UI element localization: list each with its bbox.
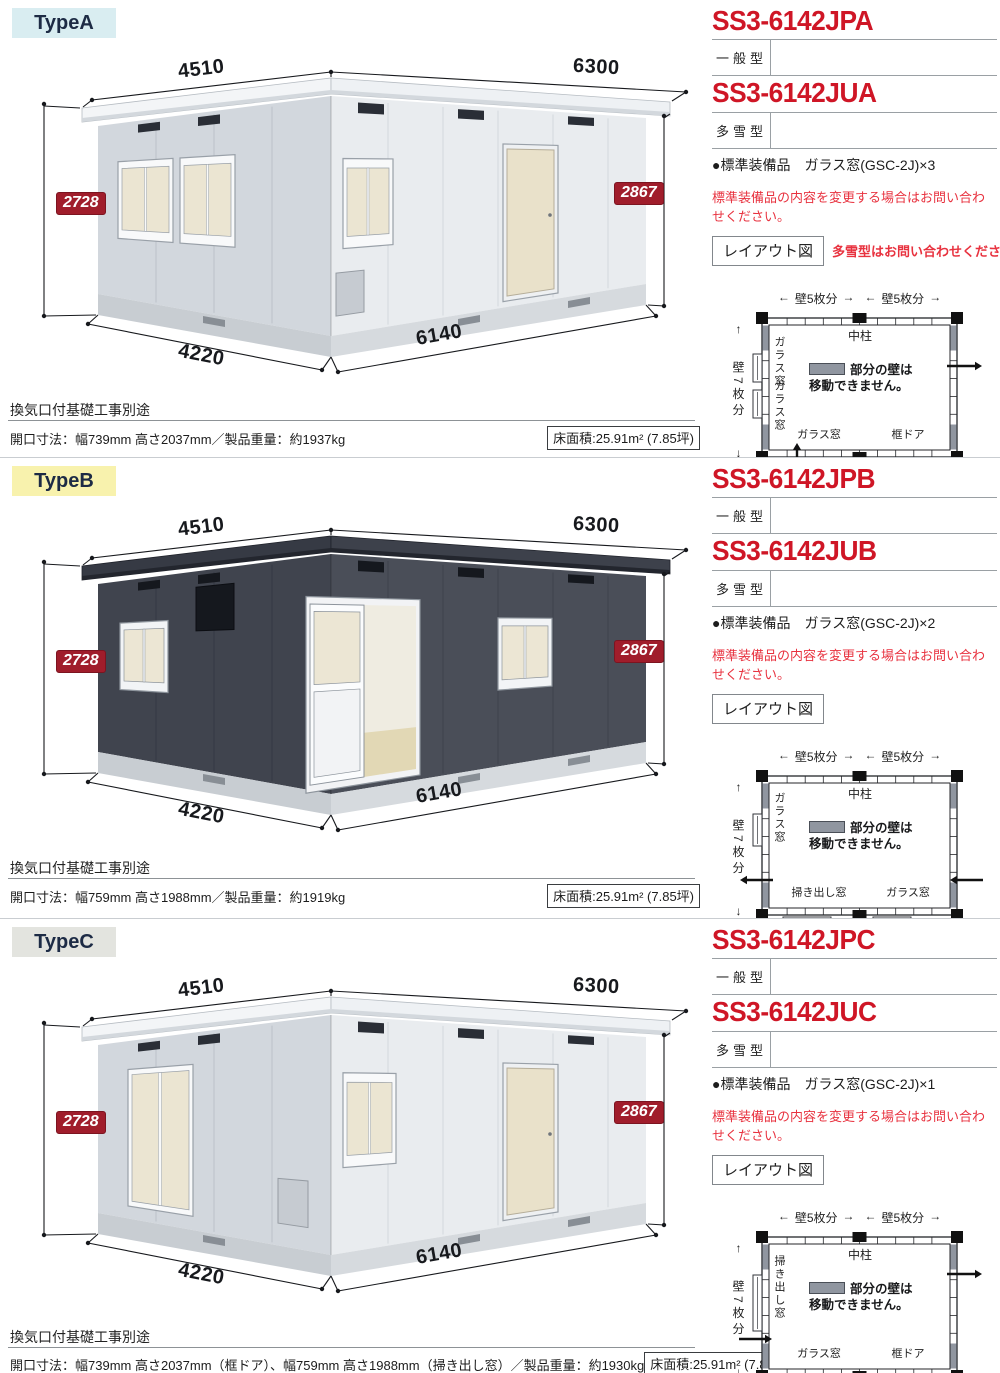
wall5-label: 壁5枚分 bbox=[795, 1209, 838, 1226]
equipment-label: ●標準装備品 bbox=[712, 157, 790, 173]
wall5-label: 壁5枚分 bbox=[795, 290, 838, 307]
divider bbox=[712, 606, 997, 607]
plan-top-dimension: ←壁5枚分→ ←壁5枚分→ bbox=[762, 1209, 957, 1226]
plan-legend: 部分の壁は 移動できません。 bbox=[809, 362, 961, 395]
arrow-left-icon: ← bbox=[865, 1209, 877, 1226]
general-type-label: 一般型 bbox=[716, 51, 767, 66]
divider bbox=[712, 148, 997, 149]
wall5-label: 壁5枚分 bbox=[882, 290, 925, 307]
type-label: TypeB bbox=[12, 466, 116, 496]
opening-spec: 開口寸法：幅759mm 高さ1988mm／製品重量：約1919kg bbox=[10, 887, 345, 906]
arrow-down-icon: ↓ bbox=[736, 1365, 742, 1373]
snow-type-row: 多雪型 bbox=[712, 571, 997, 606]
layout-diagram-button[interactable]: レイアウト図 bbox=[712, 1155, 824, 1185]
building-illustration: 4510 6300 2728 2867 4220 6140 bbox=[28, 963, 700, 1315]
arrow-right-icon: → bbox=[929, 748, 941, 765]
wall7-label: 壁7枚分 bbox=[730, 819, 747, 878]
dim-height-left-badge: 2728 bbox=[56, 1111, 106, 1134]
equipment-line: ●標準装備品ガラス窓(GSC-2J)×2 bbox=[712, 613, 997, 633]
divider bbox=[712, 1067, 997, 1068]
arrow-down-icon: ↓ bbox=[736, 446, 742, 458]
floor-plan: ←壁5枚分→ ←壁5枚分→ ↑ 壁7枚分 ↓ 中柱 部分の壁は 移動できません。… bbox=[725, 736, 995, 919]
snow-contact-note: 多雪型はお問い合わせください。 bbox=[832, 241, 1000, 260]
vent-note: 換気口付基礎工事別途 bbox=[10, 400, 150, 420]
vent-note: 換気口付基礎工事別途 bbox=[10, 1327, 150, 1347]
arrow-left-icon: ← bbox=[778, 1209, 790, 1226]
snow-type-label: 多雪型 bbox=[716, 124, 767, 139]
model-number-snow: SS3-6142JUB bbox=[712, 534, 980, 569]
equipment-line: ●標準装備品ガラス窓(GSC-2J)×1 bbox=[712, 1074, 997, 1094]
equipment-label: ●標準装備品 bbox=[712, 1076, 790, 1092]
building-drawing bbox=[28, 963, 700, 1315]
layout-row: レイアウト図 多雪型はお問い合わせください。 bbox=[712, 236, 997, 266]
arrow-down-icon: ↓ bbox=[736, 904, 742, 918]
plan-top-dimension: ←壁5枚分→ ←壁5枚分→ bbox=[762, 290, 957, 307]
legend-line2: 移動できません。 bbox=[809, 837, 909, 851]
arrow-up-icon: ↑ bbox=[736, 780, 742, 794]
divider bbox=[8, 1347, 695, 1348]
wall7-label: 壁7枚分 bbox=[730, 1280, 747, 1339]
equipment-line: ●標準装備品ガラス窓(GSC-2J)×3 bbox=[712, 155, 997, 175]
building-drawing bbox=[28, 44, 700, 396]
vent-note: 換気口付基礎工事別途 bbox=[10, 858, 150, 878]
plan-bottom-left-opening: 掃き出し窓 bbox=[781, 884, 857, 900]
dim-height-left-badge: 2728 bbox=[56, 192, 106, 215]
fixed-wall-swatch bbox=[809, 363, 845, 375]
product-section-type-b: TypeB 4510 6300 2728 2867 4220 6140 換気口付… bbox=[0, 458, 1000, 919]
dim-height-right-badge: 2867 bbox=[614, 182, 664, 205]
plan-left-dimension: ↑ 壁7枚分 ↓ bbox=[730, 1241, 747, 1373]
wall5-label: 壁5枚分 bbox=[795, 748, 838, 765]
general-type-row: 一般型 bbox=[712, 40, 997, 75]
spec-row: 開口寸法：幅759mm 高さ1988mm／製品重量：約1919kg 床面積:25… bbox=[10, 884, 700, 908]
plan-bottom-right-opening: 框ドア bbox=[867, 426, 949, 442]
wall5-label: 壁5枚分 bbox=[882, 748, 925, 765]
legend-line1: 部分の壁は bbox=[850, 821, 913, 835]
arrow-right-icon: → bbox=[843, 748, 855, 765]
equipment-value: ガラス窓(GSC-2J)×2 bbox=[804, 615, 935, 631]
arrow-up-icon: ↑ bbox=[736, 322, 742, 336]
change-warning: 標準装備品の内容を変更する場合はお問い合わせください。 bbox=[712, 1107, 997, 1146]
type-label: TypeA bbox=[12, 8, 116, 38]
building-illustration: 4510 6300 2728 2867 4220 6140 bbox=[28, 44, 700, 396]
building-drawing bbox=[28, 502, 700, 854]
dim-front-width: 6300 bbox=[572, 974, 620, 999]
center-pillar-label: 中柱 bbox=[837, 1246, 883, 1263]
snow-type-label: 多雪型 bbox=[716, 1043, 767, 1058]
arrow-left-icon: ← bbox=[778, 748, 790, 765]
general-type-label: 一般型 bbox=[716, 970, 767, 985]
center-pillar-label: 中柱 bbox=[837, 327, 883, 344]
model-number-snow: SS3-6142JUA bbox=[712, 76, 980, 111]
legend-line2: 移動できません。 bbox=[809, 1298, 909, 1312]
model-number-general: SS3-6142JPB bbox=[712, 462, 980, 497]
opening-spec: 開口寸法：幅739mm 高さ2037mm（框ドア）、幅759mm 高さ1988m… bbox=[10, 1355, 644, 1373]
snow-type-row: 多雪型 bbox=[712, 113, 997, 148]
divider bbox=[8, 878, 695, 879]
legend-line1: 部分の壁は bbox=[850, 1282, 913, 1296]
change-warning: 標準装備品の内容を変更する場合はお問い合わせください。 bbox=[712, 188, 997, 227]
divider bbox=[8, 420, 695, 421]
wall7-label: 壁7枚分 bbox=[730, 361, 747, 420]
wall5-label: 壁5枚分 bbox=[882, 1209, 925, 1226]
snow-type-row: 多雪型 bbox=[712, 1032, 997, 1067]
legend-line2: 移動できません。 bbox=[809, 379, 909, 393]
snow-type-label: 多雪型 bbox=[716, 582, 767, 597]
fixed-wall-swatch bbox=[809, 1282, 845, 1294]
model-number-snow: SS3-6142JUC bbox=[712, 995, 980, 1030]
product-section-type-c: TypeC 4510 6300 2728 2867 4220 6140 換気口付… bbox=[0, 919, 1000, 1373]
product-section-type-a: TypeA 4510 6300 2728 2867 4220 6140 換気口付… bbox=[0, 0, 1000, 458]
model-info-column: SS3-6142JPA 一般型 SS3-6142JUA 多雪型 ●標準装備品ガラ… bbox=[712, 4, 997, 458]
equipment-label: ●標準装備品 bbox=[712, 615, 790, 631]
center-pillar-label: 中柱 bbox=[837, 785, 883, 802]
model-number-general: SS3-6142JPC bbox=[712, 923, 980, 958]
plan-left-dimension: ↑ 壁7枚分 ↓ bbox=[730, 780, 747, 918]
plan-legend: 部分の壁は 移動できません。 bbox=[809, 820, 961, 853]
layout-diagram-button[interactable]: レイアウト図 bbox=[712, 694, 824, 724]
general-type-label: 一般型 bbox=[716, 509, 767, 524]
arrow-left-icon: ← bbox=[865, 290, 877, 307]
dim-height-right-badge: 2867 bbox=[614, 1101, 664, 1124]
floor-plan: ←壁5枚分→ ←壁5枚分→ ↑ 壁7枚分 ↓ 中柱 部分の壁は 移動できません。… bbox=[725, 278, 995, 458]
equipment-value: ガラス窓(GSC-2J)×1 bbox=[804, 1076, 935, 1092]
arrow-left-icon: ← bbox=[865, 748, 877, 765]
dim-front-width: 6300 bbox=[572, 513, 620, 538]
layout-row: レイアウト図 bbox=[712, 694, 997, 724]
arrow-right-icon: → bbox=[929, 1209, 941, 1226]
arrow-right-icon: → bbox=[843, 290, 855, 307]
plan-legend: 部分の壁は 移動できません。 bbox=[809, 1281, 961, 1314]
floor-plan: ←壁5枚分→ ←壁5枚分→ ↑ 壁7枚分 ↓ 中柱 部分の壁は 移動できません。… bbox=[725, 1197, 995, 1373]
plan-left-dimension: ↑ 壁7枚分 ↓ bbox=[730, 322, 747, 458]
change-warning: 標準装備品の内容を変更する場合はお問い合わせください。 bbox=[712, 646, 997, 685]
general-type-row: 一般型 bbox=[712, 959, 997, 994]
plan-bottom-right-opening: 框ドア bbox=[867, 1345, 949, 1361]
layout-diagram-button[interactable]: レイアウト図 bbox=[712, 236, 824, 266]
plan-left-wall-opening-label: ガラス窓 bbox=[771, 792, 787, 844]
model-number-general: SS3-6142JPA bbox=[712, 4, 980, 39]
opening-spec: 開口寸法：幅739mm 高さ2037mm／製品重量：約1937kg bbox=[10, 429, 345, 448]
dim-height-right-badge: 2867 bbox=[614, 640, 664, 663]
model-info-column: SS3-6142JPC 一般型 SS3-6142JUC 多雪型 ●標準装備品ガラ… bbox=[712, 923, 997, 1373]
arrow-right-icon: → bbox=[929, 290, 941, 307]
spec-row: 開口寸法：幅739mm 高さ2037mm／製品重量：約1937kg 床面積:25… bbox=[10, 426, 700, 450]
plan-bottom-left-opening: ガラス窓 bbox=[781, 426, 857, 442]
building-illustration: 4510 6300 2728 2867 4220 6140 bbox=[28, 502, 700, 854]
model-info-column: SS3-6142JPB 一般型 SS3-6142JUB 多雪型 ●標準装備品ガラ… bbox=[712, 462, 997, 919]
fixed-wall-swatch bbox=[809, 821, 845, 833]
type-label: TypeC bbox=[12, 927, 116, 957]
plan-bottom-left-opening: ガラス窓 bbox=[781, 1345, 857, 1361]
plan-left-wall-opening-label: 掃き出し窓 bbox=[771, 1255, 787, 1320]
spec-row: 開口寸法：幅739mm 高さ2037mm（框ドア）、幅759mm 高さ1988m… bbox=[10, 1352, 700, 1373]
layout-row: レイアウト図 bbox=[712, 1155, 997, 1185]
floor-area-box: 床面積:25.91m² (7.85坪) bbox=[547, 426, 700, 450]
plan-top-dimension: ←壁5枚分→ ←壁5枚分→ bbox=[762, 748, 957, 765]
general-type-row: 一般型 bbox=[712, 498, 997, 533]
plan-left-wall-opening-label: ガラス窓 bbox=[771, 380, 787, 432]
arrow-left-icon: ← bbox=[778, 290, 790, 307]
dim-front-width: 6300 bbox=[572, 55, 620, 80]
arrow-up-icon: ↑ bbox=[736, 1241, 742, 1255]
plan-bottom-right-opening: ガラス窓 bbox=[867, 884, 949, 900]
legend-line1: 部分の壁は bbox=[850, 363, 913, 377]
dim-height-left-badge: 2728 bbox=[56, 650, 106, 673]
arrow-right-icon: → bbox=[843, 1209, 855, 1226]
floor-area-box: 床面積:25.91m² (7.85坪) bbox=[547, 884, 700, 908]
equipment-value: ガラス窓(GSC-2J)×3 bbox=[804, 157, 935, 173]
